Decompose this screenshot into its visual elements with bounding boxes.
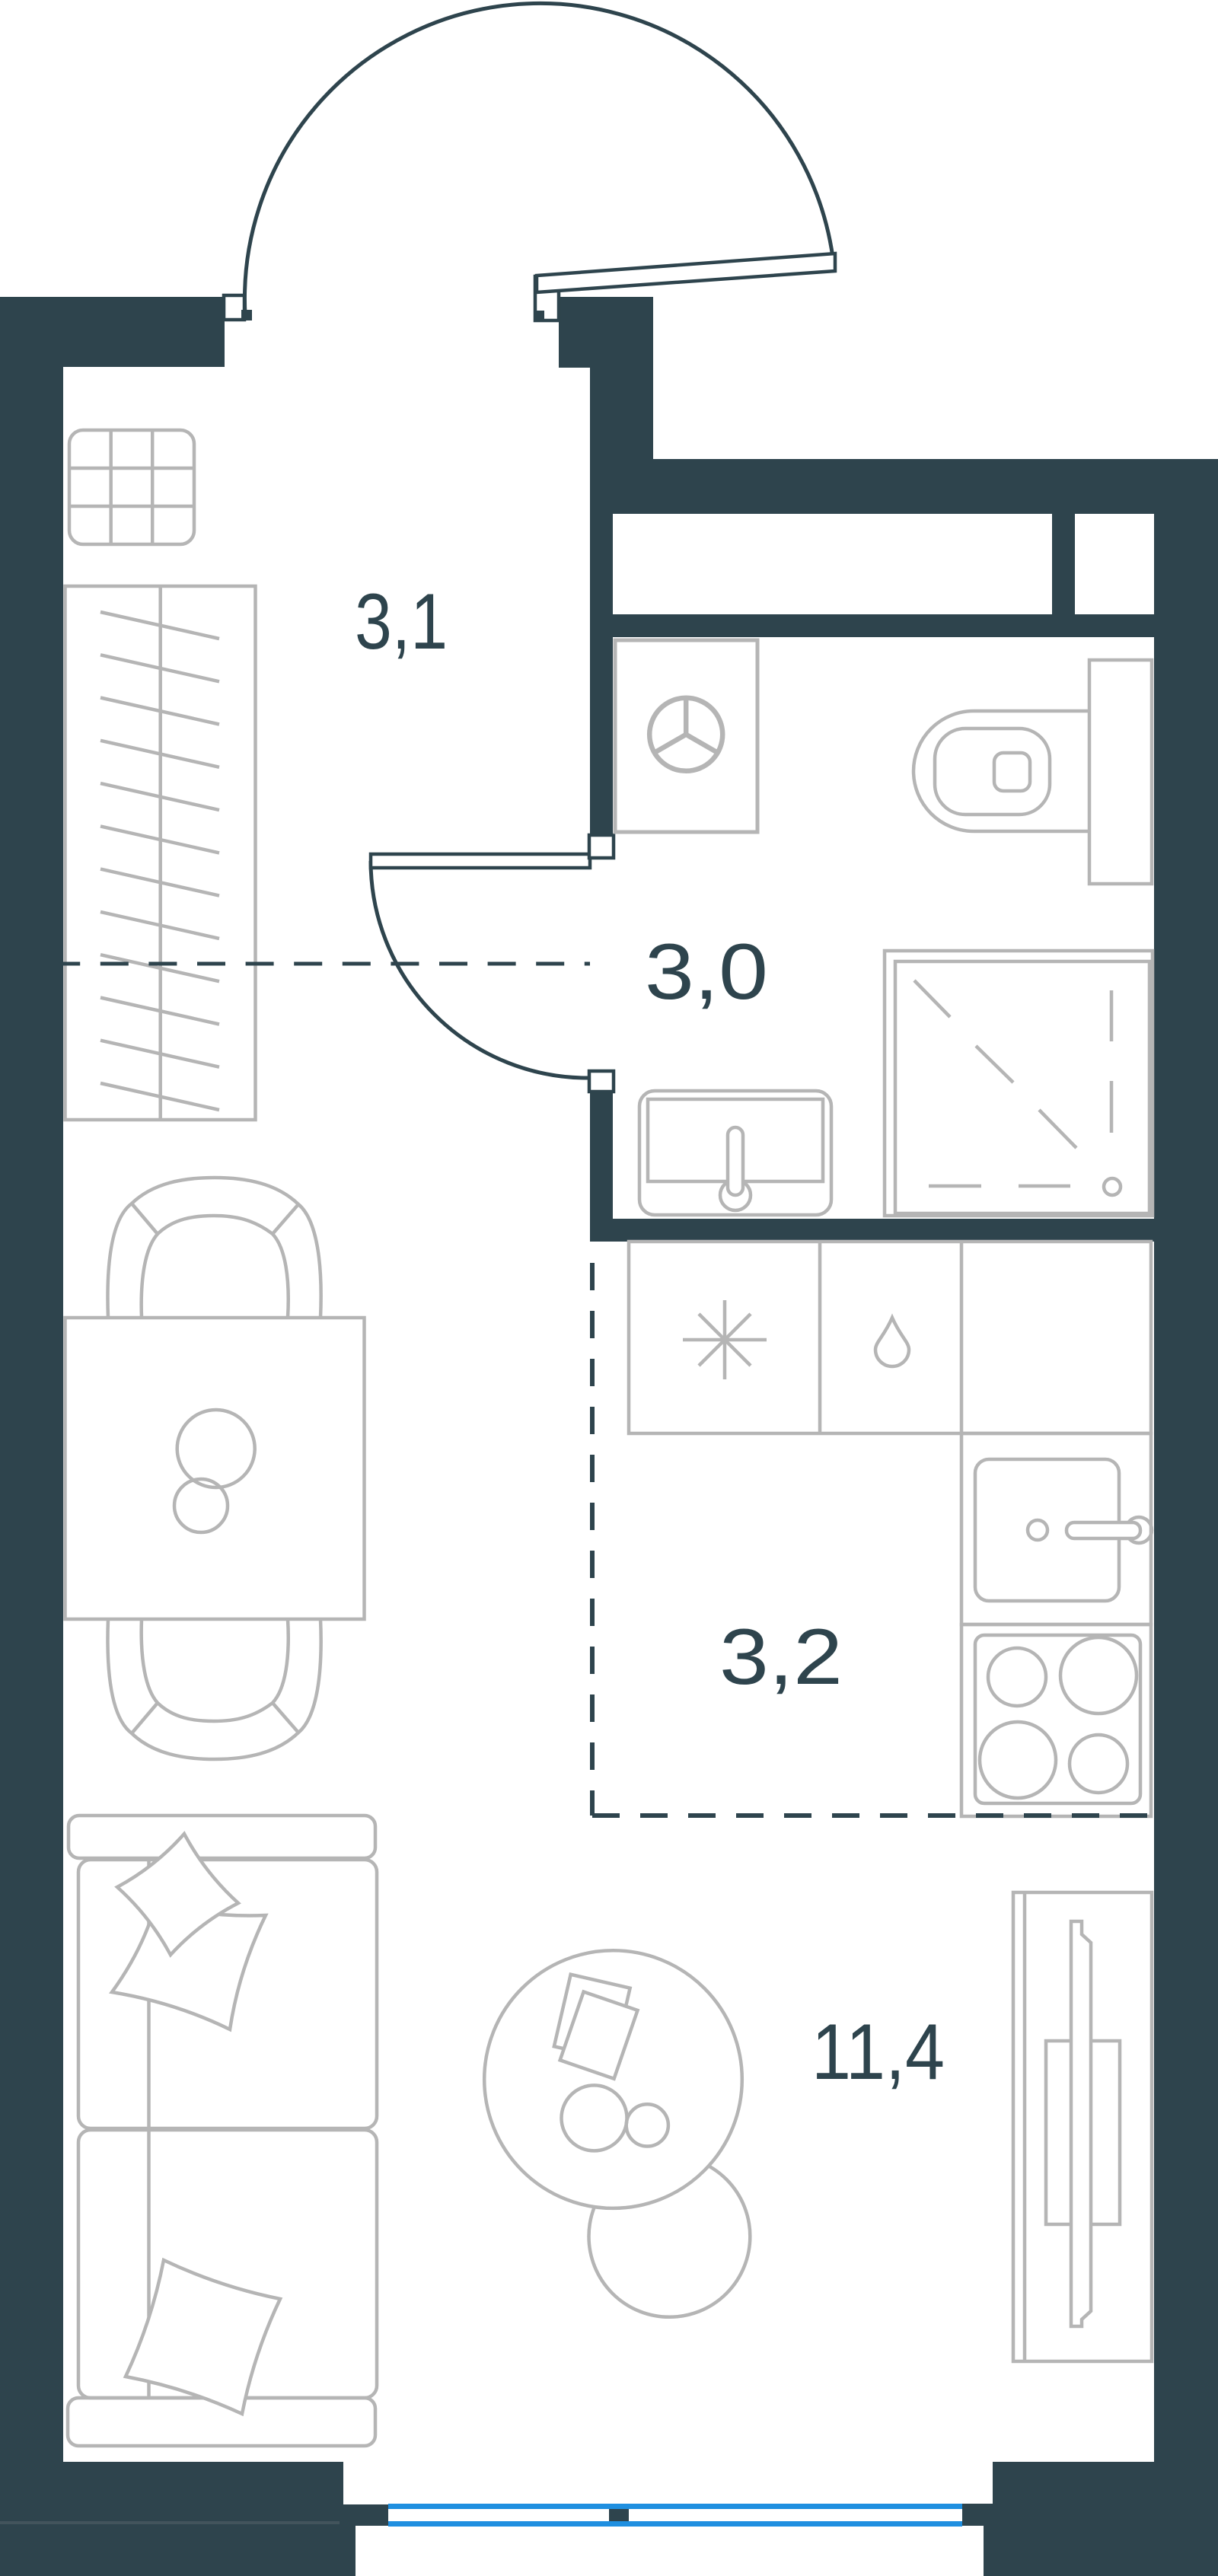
- svg-text:11,4: 11,4: [811, 2008, 945, 2096]
- svg-text:3,0: 3,0: [645, 928, 768, 1016]
- svg-text:3,2: 3,2: [719, 1613, 843, 1701]
- svg-text:3,1: 3,1: [355, 578, 448, 666]
